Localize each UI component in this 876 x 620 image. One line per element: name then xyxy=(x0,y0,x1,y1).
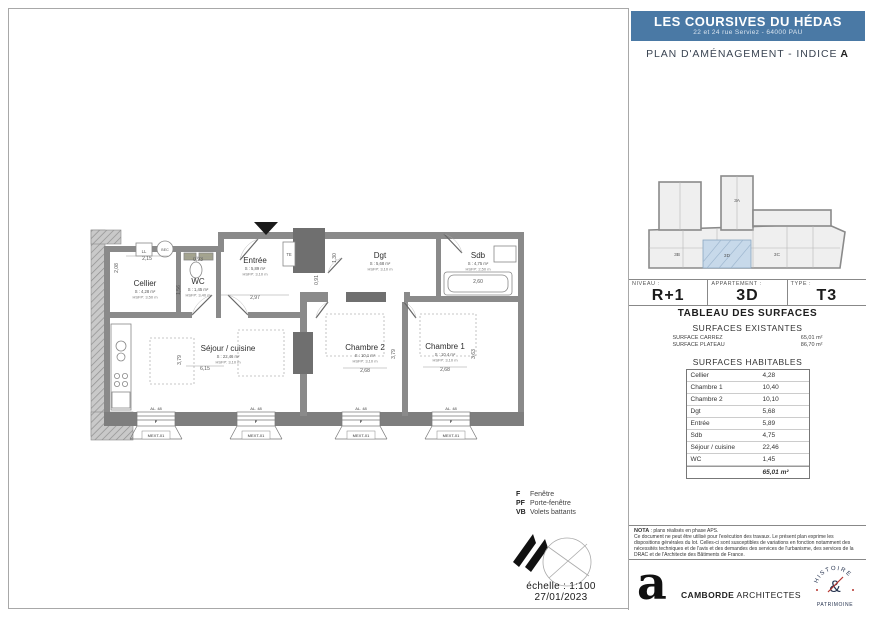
plan-title: PLAN D'AMÉNAGEMENT - INDICEA xyxy=(629,48,866,60)
type-value: T3 xyxy=(788,287,866,305)
legend-item: FFenêtre xyxy=(516,490,576,499)
dim: 2,68 xyxy=(440,367,450,373)
te-label: TE xyxy=(286,252,292,257)
nota-body: Ce document ne peut être utilisé pour l'… xyxy=(634,534,854,558)
window-sill-note: AL. 48 xyxy=(355,406,367,411)
window-sill-note: AL. 48 xyxy=(445,406,457,411)
row-label: Cellier xyxy=(691,372,763,379)
row-value: 22,46 xyxy=(763,444,805,451)
table-row: WC1,45 xyxy=(687,454,809,466)
room-height-chambre2: HSFP: 3,10 m xyxy=(352,359,378,364)
surfaces-table-title: TABLEAU DES SURFACES xyxy=(629,308,866,319)
row-value: 5,68 xyxy=(763,408,805,415)
window-tag: MEXT-01 xyxy=(353,433,370,438)
dim: 0,91 xyxy=(314,275,320,285)
legend-item: PFPorte-fenêtre xyxy=(516,499,576,508)
surface-carrez-row: SURFACE CARREZ 65,01 m² xyxy=(673,335,823,342)
legend-key: PF xyxy=(516,499,530,508)
toilet xyxy=(190,262,202,278)
room-height-sejour: HSFP: 3,10 m xyxy=(215,360,241,365)
key-plan-unit-highlighted: 3D xyxy=(724,253,731,259)
dim: 0,93 xyxy=(193,257,203,263)
appartement-cell: APPARTEMENT : 3D xyxy=(708,280,787,305)
plan-legend: FFenêtre PFPorte-fenêtre VBVolets battan… xyxy=(516,490,576,517)
room-height-sdb: HSFP: 2,50 m xyxy=(465,267,491,272)
plan-title-text: PLAN D'AMÉNAGEMENT - INDICE xyxy=(646,48,837,60)
window-sill-note: AL. 48 xyxy=(250,406,262,411)
table-row: Entrée5,89 xyxy=(687,418,809,430)
room-area-chambre1: S : 10,4 m² xyxy=(435,352,456,357)
row-value: 4,75 xyxy=(763,432,805,439)
room-height-dgt: HSFP: 3,10 m xyxy=(367,267,393,272)
row-value: 10,40 xyxy=(763,384,805,391)
type-cell: TYPE : T3 xyxy=(788,280,866,305)
dim: 3,63 xyxy=(471,349,477,359)
legend-item: VBVolets battants xyxy=(516,508,576,517)
surfaces-existantes-title: SURFACES EXISTANTES xyxy=(629,323,866,333)
architect-name-bold: CAMBORDE xyxy=(681,590,734,600)
dim: 2,97 xyxy=(250,295,260,301)
plan-indice: A xyxy=(840,48,848,60)
table-row: Chambre 210,10 xyxy=(687,394,809,406)
bec-label: BEC xyxy=(161,248,169,252)
surface-carrez-value: 65,01 m² xyxy=(801,335,823,342)
table-total-row: 65,01 m² xyxy=(687,466,809,478)
surfaces-habitables-title: SURFACES HABITABLES xyxy=(629,357,866,367)
room-label-sejour: Séjour / cuisine xyxy=(201,344,256,353)
room-height-cellier: HSFP: 3,50 m xyxy=(132,295,158,300)
project-address: 22 et 24 rue Serviez - 64000 PAU xyxy=(631,29,865,36)
table-row: Sdb4,75 xyxy=(687,430,809,442)
dim: 2,08 xyxy=(114,263,120,273)
room-label-chambre1: Chambre 1 xyxy=(425,342,465,351)
surface-carrez-label: SURFACE CARREZ xyxy=(673,335,723,342)
row-value: 1,45 xyxy=(763,456,805,463)
legend-label: Fenêtre xyxy=(530,491,554,498)
row-value: 10,10 xyxy=(763,396,805,403)
row-label: Chambre 2 xyxy=(691,396,763,403)
stamp-bottom-text: PATRIMOINE xyxy=(817,602,853,608)
unit-info-row: NIVEAU : R+1 APPARTEMENT : 3D TYPE : T3 xyxy=(629,279,866,306)
washbasin xyxy=(494,246,516,262)
ll-label: LL xyxy=(142,249,147,254)
scale-block: échelle : 1:100 27/01/2023 xyxy=(498,581,624,603)
row-value: 5,89 xyxy=(763,420,805,427)
room-height-wc: HSFP: 3,40 m xyxy=(185,293,211,298)
room-area-entree: S : 5,89 m² xyxy=(245,266,266,271)
room-label-chambre2: Chambre 2 xyxy=(345,343,385,352)
surfaces-section: TABLEAU DES SURFACES SURFACES EXISTANTES… xyxy=(629,308,866,479)
room-area-sejour: S : 22,46 m² xyxy=(217,354,240,359)
row-label: Séjour / cuisine xyxy=(691,444,763,451)
legend-label: Porte-fenêtre xyxy=(530,500,571,507)
row-value: 4,28 xyxy=(763,372,805,379)
surfaces-existantes: SURFACE CARREZ 65,01 m² SURFACE PLATEAU … xyxy=(673,335,823,349)
doors xyxy=(192,234,462,318)
dim: 2,15 xyxy=(142,256,152,262)
room-height-chambre1: HSFP: 3,10 m xyxy=(432,358,458,363)
dim: 3,79 xyxy=(177,355,183,365)
dim: 6,15 xyxy=(200,366,210,372)
interior-walls xyxy=(110,228,524,416)
key-plan-unit: 3B xyxy=(674,252,680,258)
row-label: Dgt xyxy=(691,408,763,415)
row-label: Chambre 1 xyxy=(691,384,763,391)
legend-key: VB xyxy=(516,508,530,517)
room-label-entree: Entrée xyxy=(243,256,267,265)
table-total-value: 65,01 m² xyxy=(763,469,805,476)
dim: 1,30 xyxy=(332,253,338,263)
scale-date: 27/01/2023 xyxy=(498,592,624,603)
key-plan-unit: 3C xyxy=(774,252,781,258)
legend-label: Volets battants xyxy=(530,509,576,516)
footer: a CAMBORDE ARCHITECTES HISTOIRE & PATRIM… xyxy=(629,559,866,610)
dim: 1,56 xyxy=(176,285,182,295)
dim: 2,60 xyxy=(473,279,483,285)
row-label: WC xyxy=(691,456,763,463)
row-label: Entrée xyxy=(691,420,763,427)
window-tag: MEXT-01 xyxy=(248,433,265,438)
dim: 2,68 xyxy=(360,368,370,374)
architect-name-regular: ARCHITECTES xyxy=(734,590,801,600)
north-arrow xyxy=(503,518,613,590)
room-area-sdb: S : 4,75 m² xyxy=(468,261,489,266)
niveau-value: R+1 xyxy=(629,287,707,305)
room-area-dgt: S : 5,68 m² xyxy=(370,261,391,266)
title-block-panel: LES COURSIVES DU HÉDAS 22 et 24 rue Serv… xyxy=(628,8,866,610)
table-row: Séjour / cuisine22,46 xyxy=(687,442,809,454)
architect-name: CAMBORDE ARCHITECTES xyxy=(681,590,801,600)
surface-plateau-label: SURFACE PLATEAU xyxy=(673,342,725,349)
surface-plateau-row: SURFACE PLATEAU 86,70 m² xyxy=(673,342,823,349)
room-label-sdb: Sdb xyxy=(471,251,486,260)
histoire-patrimoine-stamp: HISTOIRE & PATRIMOINE xyxy=(812,563,858,609)
room-label-wc: WC xyxy=(191,277,205,286)
camborde-logo: a xyxy=(637,558,667,608)
appartement-value: 3D xyxy=(708,287,786,305)
niveau-cell: NIVEAU : R+1 xyxy=(629,280,708,305)
room-label-dgt: Dgt xyxy=(374,251,387,260)
nota-block: NOTA : plans réalisés en phase APS. Ce d… xyxy=(629,525,866,558)
window-sill-note: AL. 48 xyxy=(150,406,162,411)
table-row: Chambre 110,40 xyxy=(687,382,809,394)
surface-plateau-value: 86,70 m² xyxy=(801,342,823,349)
row-label: Sdb xyxy=(691,432,763,439)
room-area-wc: S : 1,45 m² xyxy=(188,287,209,292)
room-area-cellier: S : 4,28 m² xyxy=(135,289,156,294)
table-row: Dgt5,68 xyxy=(687,406,809,418)
key-plan-unit: 3A xyxy=(734,198,741,204)
legend-key: F xyxy=(516,490,530,499)
project-banner: LES COURSIVES DU HÉDAS 22 et 24 rue Serv… xyxy=(631,11,865,41)
room-area-chambre2: S : 10,1 m² xyxy=(355,353,376,358)
window-tag: MEXT-01 xyxy=(148,433,165,438)
room-label-cellier: Cellier xyxy=(134,279,157,288)
dim: 3,79 xyxy=(391,349,397,359)
project-title: LES COURSIVES DU HÉDAS xyxy=(631,11,865,29)
table-row: Cellier4,28 xyxy=(687,370,809,382)
scale-text: échelle : 1:100 xyxy=(498,581,624,592)
key-plan: 3A 3B 3D 3C xyxy=(641,168,853,276)
surfaces-habitables-table: Cellier4,28 Chambre 110,40 Chambre 210,1… xyxy=(686,369,810,479)
room-height-entree: HSFP: 3,10 m xyxy=(242,272,268,277)
floor-plan: AL. 48 AL. 48 AL. 48 AL. 48 F F F F MEXT… xyxy=(88,220,533,452)
window-tag: MEXT-01 xyxy=(443,433,460,438)
